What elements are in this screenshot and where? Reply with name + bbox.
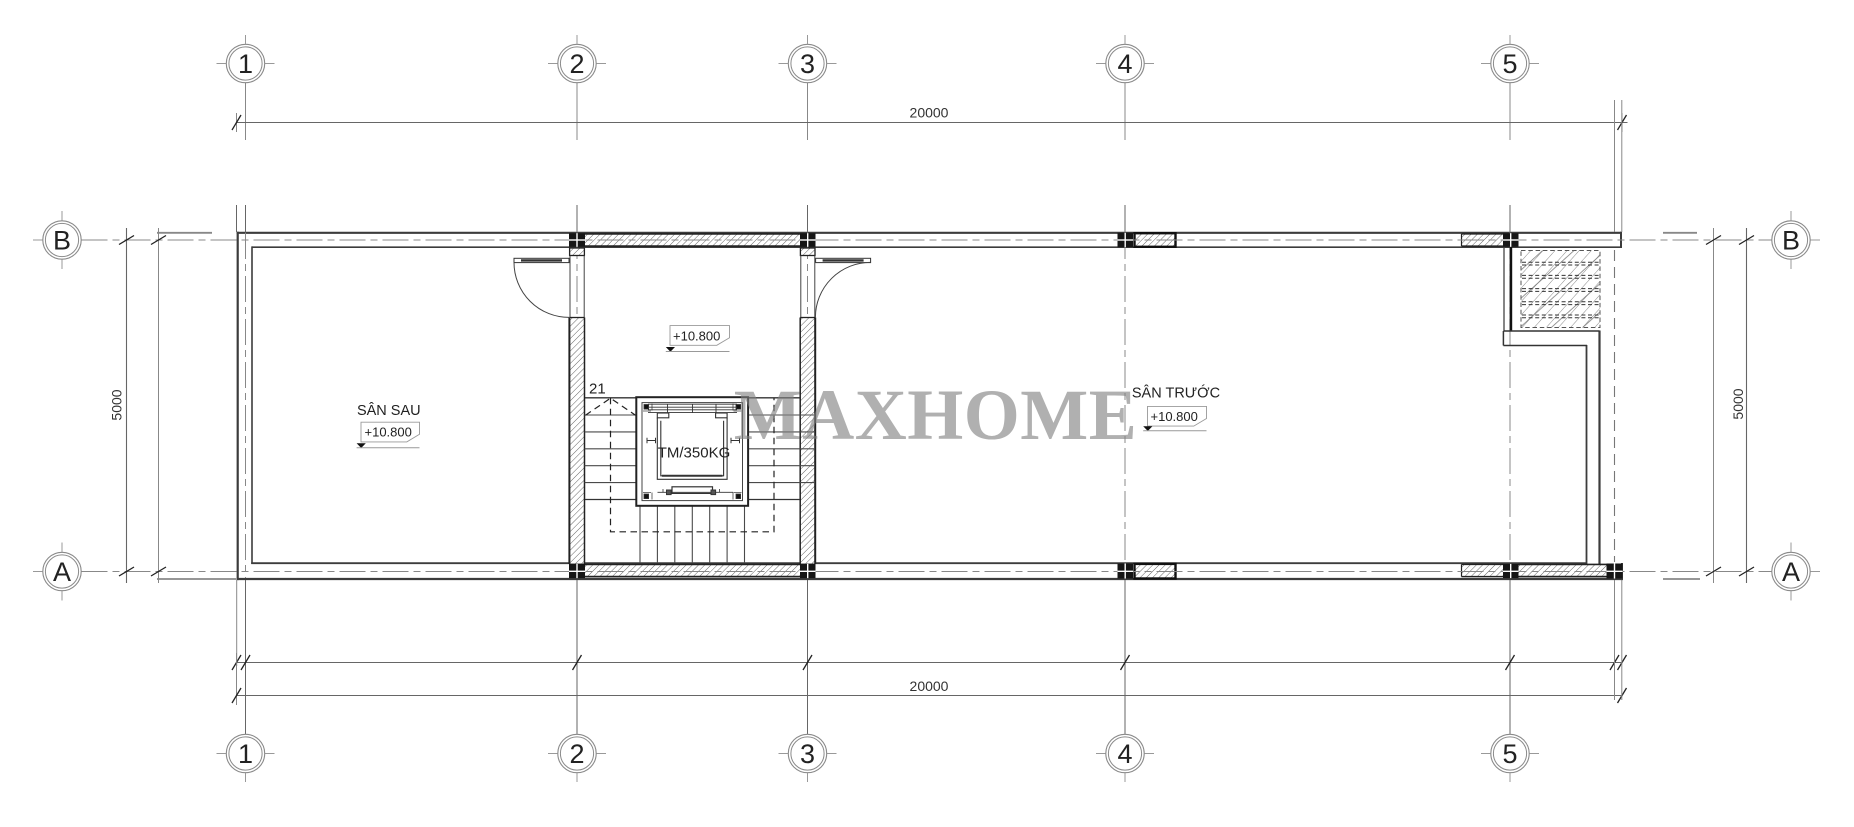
- svg-text:2: 2: [569, 49, 584, 79]
- svg-text:1: 1: [238, 49, 253, 79]
- svg-text:4: 4: [1117, 49, 1132, 79]
- svg-text:+10.800: +10.800: [1151, 409, 1198, 424]
- svg-text:+10.800: +10.800: [673, 328, 720, 343]
- svg-text:3: 3: [800, 49, 815, 79]
- svg-text:5000: 5000: [1730, 388, 1746, 419]
- svg-text:TM/350KG: TM/350KG: [658, 445, 731, 462]
- svg-text:5: 5: [1502, 49, 1517, 79]
- svg-text:4: 4: [1117, 739, 1132, 769]
- svg-text:+10.800: +10.800: [365, 425, 412, 440]
- svg-text:1: 1: [238, 739, 253, 769]
- svg-text:3: 3: [800, 739, 815, 769]
- svg-text:2: 2: [569, 739, 584, 769]
- svg-text:MAXHOME: MAXHOME: [734, 375, 1137, 455]
- svg-text:20000: 20000: [910, 105, 949, 121]
- svg-text:SÂN SAU: SÂN SAU: [357, 402, 421, 419]
- svg-text:A: A: [53, 557, 71, 587]
- svg-text:5000: 5000: [109, 389, 125, 420]
- svg-text:20000: 20000: [910, 678, 949, 694]
- svg-text:A: A: [1782, 557, 1800, 587]
- svg-text:SÂN TRƯỚC: SÂN TRƯỚC: [1132, 385, 1220, 402]
- svg-text:5: 5: [1502, 739, 1517, 769]
- svg-text:B: B: [1782, 226, 1800, 256]
- svg-text:B: B: [53, 226, 71, 256]
- svg-text:21: 21: [589, 381, 606, 398]
